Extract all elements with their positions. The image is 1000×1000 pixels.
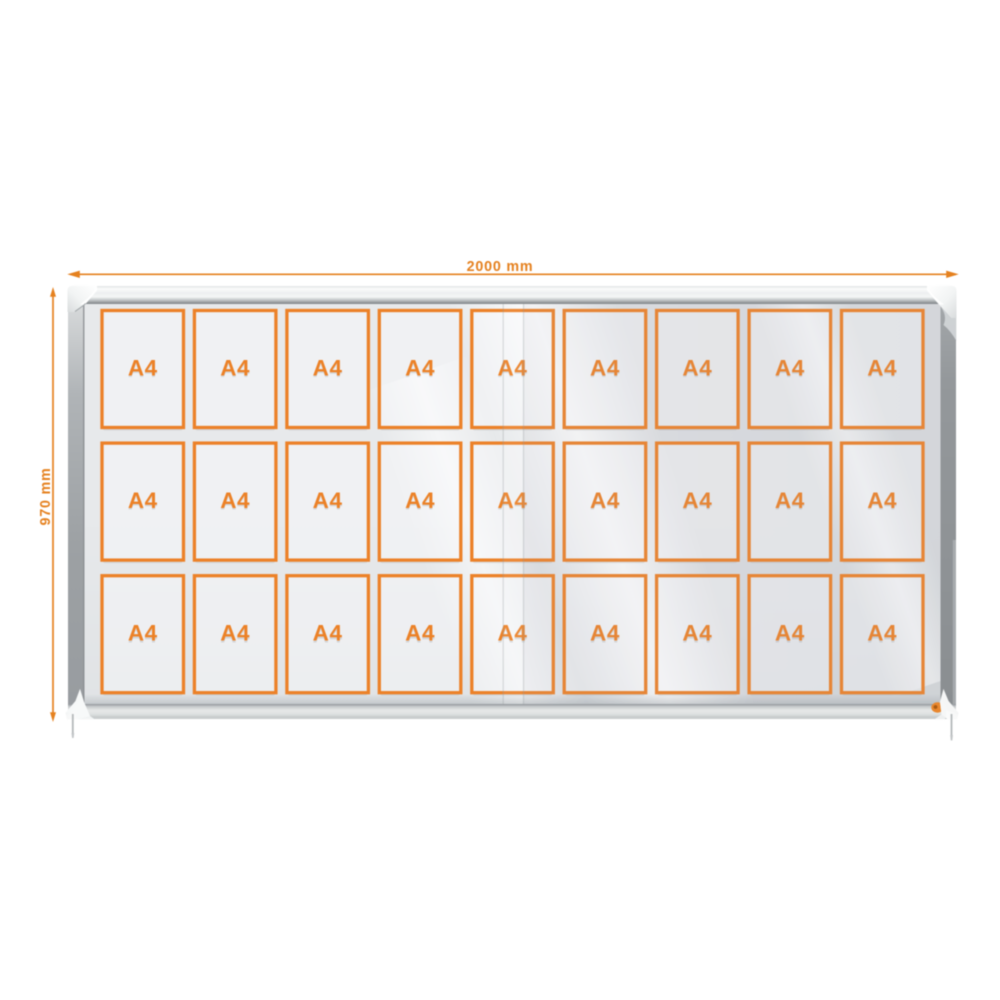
- svg-text:A4: A4: [128, 488, 158, 513]
- svg-text:A4: A4: [313, 356, 343, 381]
- svg-text:2000 mm: 2000 mm: [467, 259, 534, 275]
- svg-text:970 mm: 970 mm: [38, 467, 54, 525]
- svg-text:A4: A4: [128, 621, 158, 646]
- svg-text:A4: A4: [405, 488, 435, 513]
- svg-text:A4: A4: [313, 488, 343, 513]
- svg-text:A4: A4: [220, 621, 250, 646]
- svg-text:A4: A4: [405, 356, 435, 381]
- svg-text:A4: A4: [220, 488, 250, 513]
- svg-text:A4: A4: [128, 356, 158, 381]
- svg-text:A4: A4: [405, 621, 435, 646]
- svg-text:A4: A4: [220, 356, 250, 381]
- svg-text:A4: A4: [313, 621, 343, 646]
